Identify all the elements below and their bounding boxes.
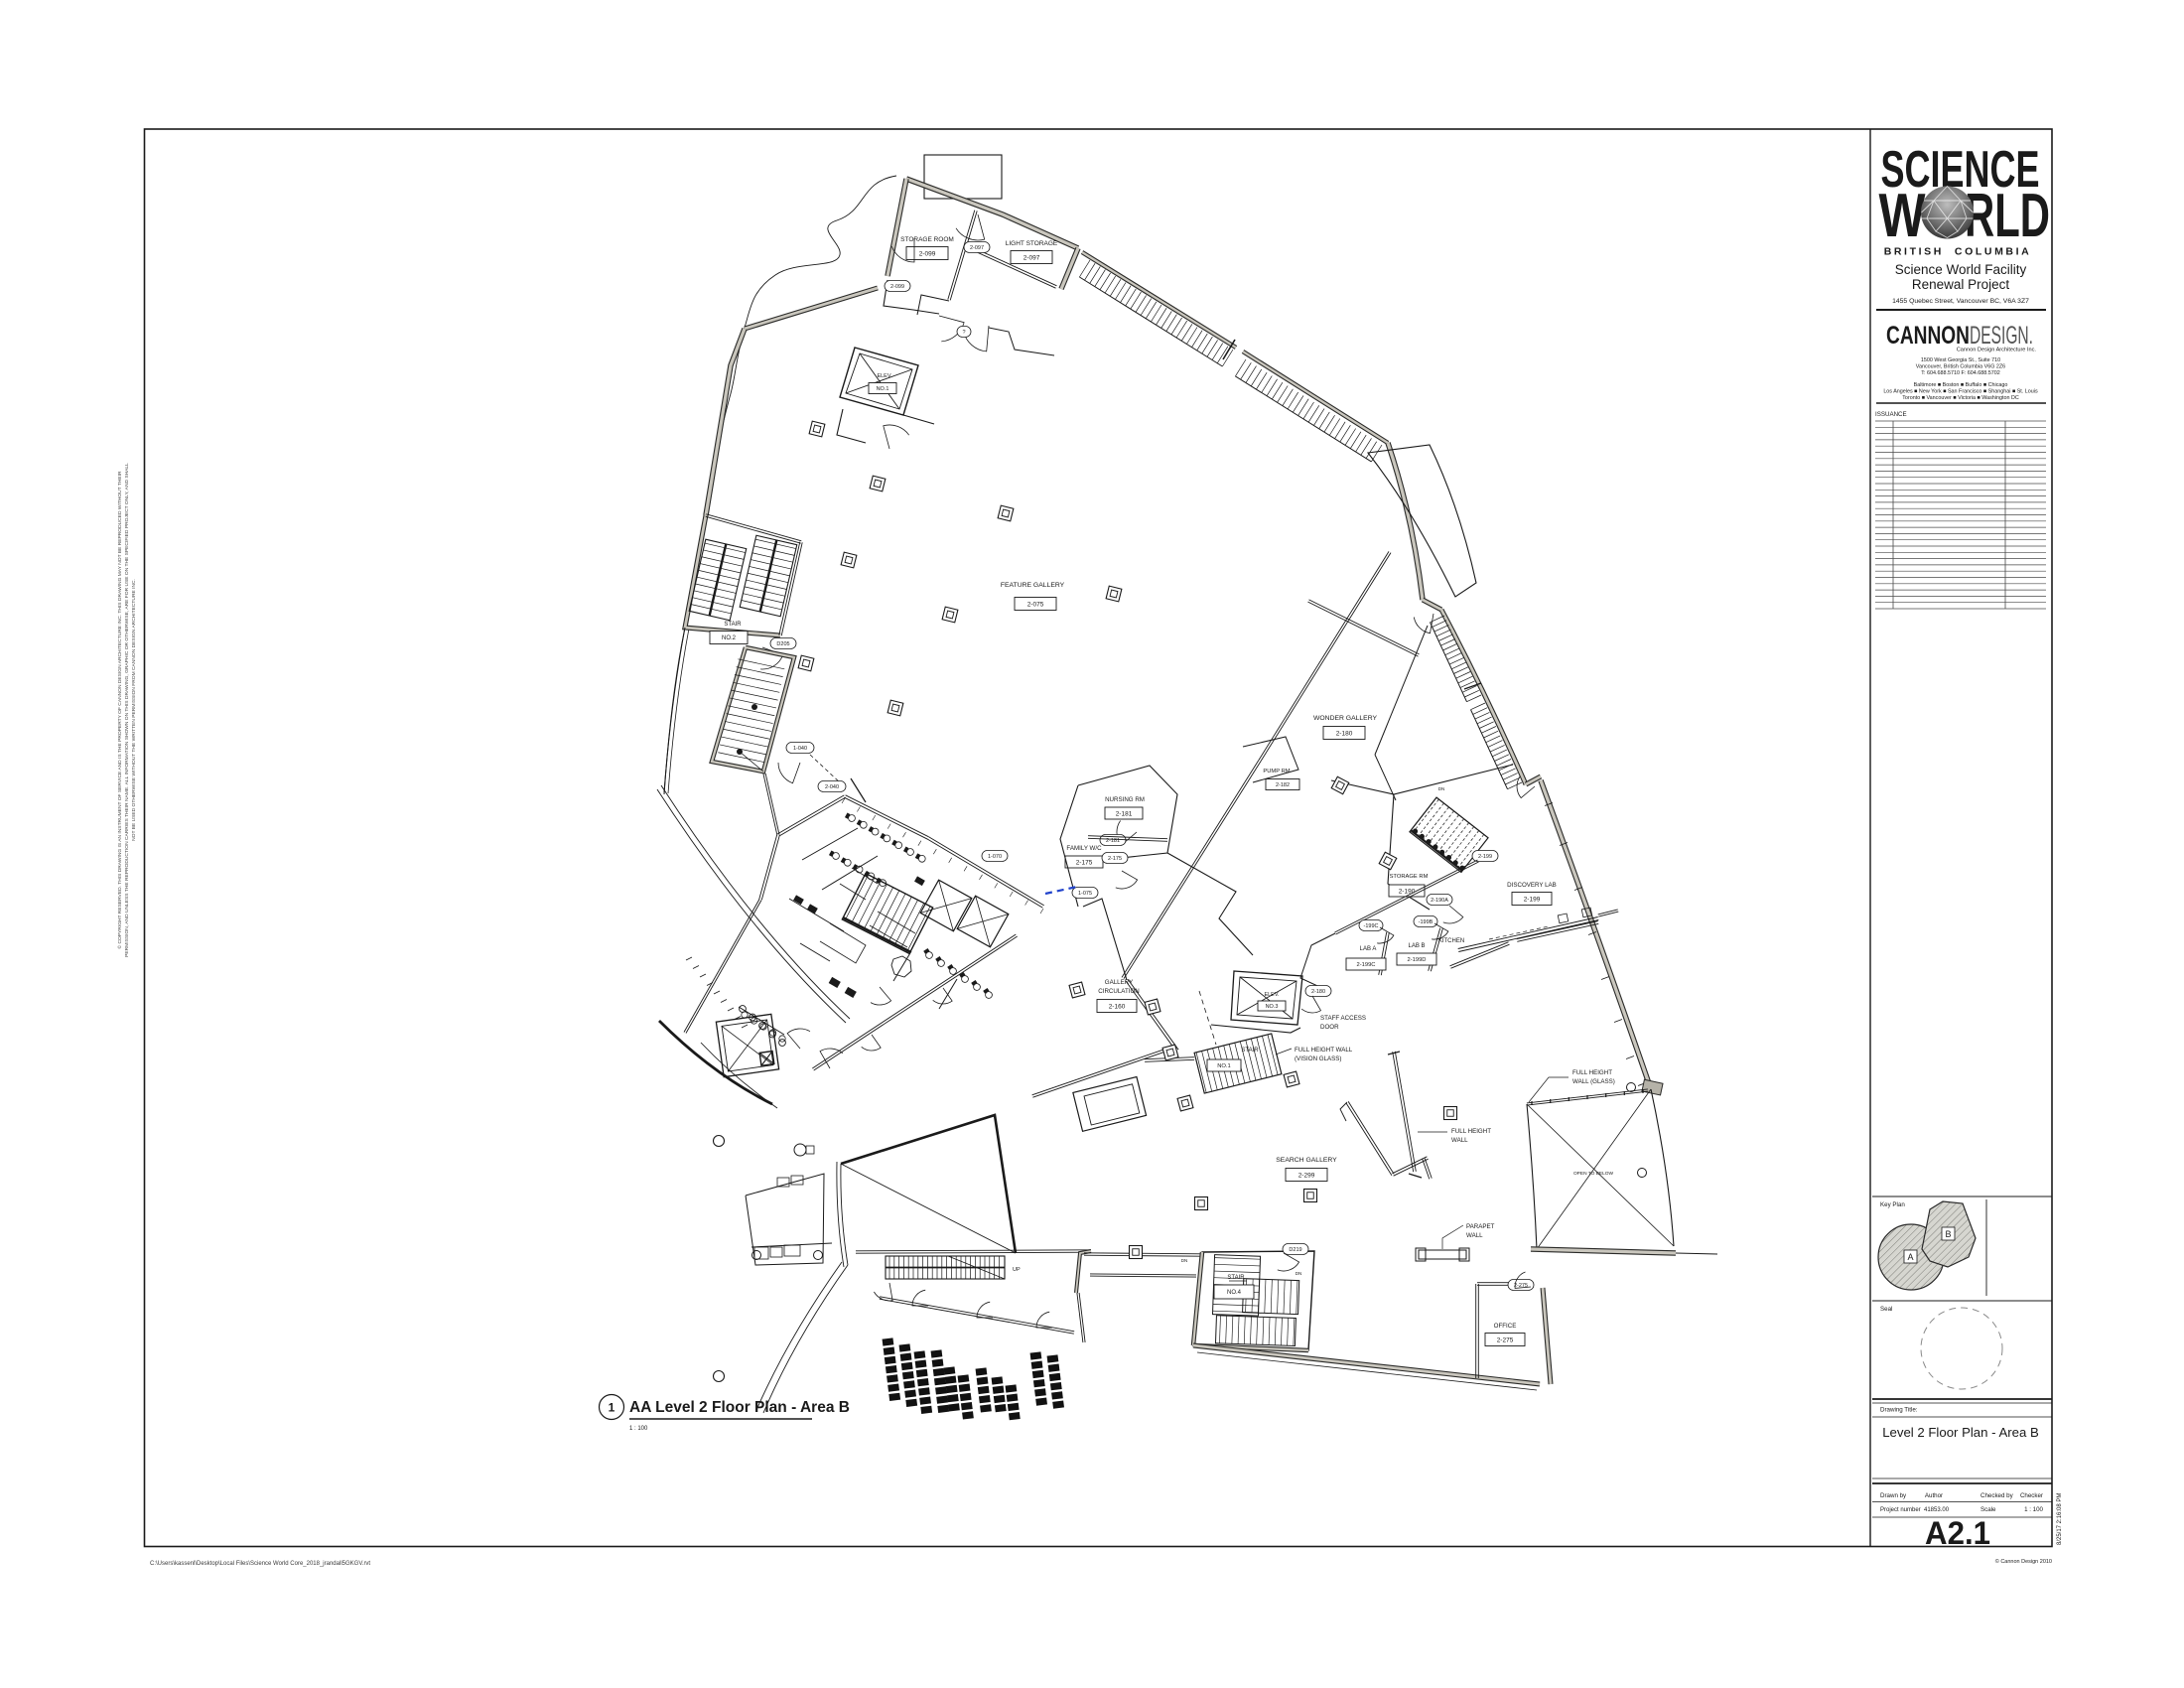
svg-text:© COPYRIGHT RESERVED. THIS DR: © COPYRIGHT RESERVED. THIS DRAWING IS AN… — [116, 471, 123, 949]
svg-text:2-097: 2-097 — [1024, 254, 1040, 261]
svg-text:Checked by: Checked by — [1980, 1492, 2014, 1499]
svg-text:-199B: -199B — [1419, 919, 1433, 925]
svg-text:DN: DN — [1181, 1258, 1188, 1263]
svg-text:FULL HEIGHT: FULL HEIGHT — [1572, 1069, 1612, 1076]
svg-text:2-160: 2-160 — [1109, 1003, 1126, 1010]
svg-text:2-099: 2-099 — [890, 284, 904, 290]
svg-text:CANNON: CANNON — [1886, 322, 1970, 350]
svg-text:DESIGN.: DESIGN. — [1970, 322, 2033, 350]
svg-text:DN: DN — [1296, 1271, 1302, 1276]
svg-text:2-075: 2-075 — [1027, 601, 1044, 608]
svg-text:Drawn by: Drawn by — [1880, 1492, 1907, 1499]
svg-text:Project number: Project number — [1880, 1507, 1921, 1513]
svg-text:OPEN TO BELOW: OPEN TO BELOW — [1573, 1171, 1614, 1177]
svg-text:2-175: 2-175 — [1108, 856, 1122, 862]
svg-text:ISSUANCE: ISSUANCE — [1875, 411, 1907, 418]
svg-text:ELEV.: ELEV. — [877, 373, 892, 379]
svg-text:A: A — [1907, 1252, 1913, 1262]
svg-text:KITCHEN: KITCHEN — [1438, 938, 1464, 944]
svg-text:Drawing Title:: Drawing Title: — [1880, 1407, 1918, 1414]
svg-text:NOT BE USED OTHERWISE WITHOUT: NOT BE USED OTHERWISE WITHOUT THE WRITTE… — [131, 579, 137, 841]
svg-text:D219: D219 — [1289, 1247, 1301, 1253]
svg-text:2-275: 2-275 — [1497, 1336, 1514, 1343]
svg-text:-199C: -199C — [1364, 923, 1379, 929]
svg-text:OFFICE: OFFICE — [1494, 1323, 1517, 1330]
svg-text:Author: Author — [1925, 1492, 1943, 1499]
svg-text:NO.4: NO.4 — [1227, 1290, 1242, 1296]
svg-text:STAFF ACCESS: STAFF ACCESS — [1320, 1015, 1366, 1022]
svg-text:Scale: Scale — [1980, 1506, 1996, 1513]
svg-text:Toronto ■ Vancouver ■ Victori: Toronto ■ Vancouver ■ Victoria ■ Washing… — [1902, 395, 2019, 401]
svg-text:STORAGE ROOM: STORAGE ROOM — [900, 236, 954, 243]
svg-text:T: 604.688.5710 F: 604.688.57: T: 604.688.5710 F: 604.688.5702 — [1921, 370, 1999, 376]
svg-text:1455 Quebec Street, Vancouver: 1455 Quebec Street, Vancouver BC, V6A 3Z… — [1892, 298, 2029, 305]
svg-text:C:\Users\kassenl\Desktop\Local: C:\Users\kassenl\Desktop\Local Files\Sci… — [150, 1561, 370, 1567]
svg-text:WONDER GALLERY: WONDER GALLERY — [1313, 715, 1378, 722]
svg-text:WALL (GLASS): WALL (GLASS) — [1572, 1078, 1615, 1085]
svg-text:NURSING RM: NURSING RM — [1105, 796, 1145, 803]
svg-text:NO.2: NO.2 — [722, 635, 737, 641]
svg-text:2-099: 2-099 — [919, 250, 936, 257]
svg-text:(VISION GLASS): (VISION GLASS) — [1295, 1055, 1341, 1062]
svg-text:Baltimore ■ Boston ■ Buffalo ■: Baltimore ■ Boston ■ Buffalo ■ Chicago — [1914, 382, 2008, 388]
svg-text:Seal: Seal — [1880, 1306, 1892, 1313]
svg-text:1 : 100: 1 : 100 — [629, 1426, 648, 1432]
svg-text:STAIR: STAIR — [1227, 1275, 1245, 1281]
svg-text:1: 1 — [609, 1401, 615, 1415]
svg-text:Vancouver, British Columbia V6: Vancouver, British Columbia V6G 2Z6 — [1916, 364, 2005, 370]
svg-text:STAIR: STAIR — [1241, 1048, 1259, 1054]
svg-text:DISCOVERY LAB: DISCOVERY LAB — [1507, 882, 1557, 889]
svg-text:1-040: 1-040 — [793, 746, 807, 752]
svg-text:PUMP RM: PUMP RM — [1263, 769, 1290, 774]
svg-text:D205: D205 — [776, 641, 789, 647]
svg-text:AA Level 2 Floor Plan - Area B: AA Level 2 Floor Plan - Area B — [629, 1399, 850, 1416]
svg-text:DN: DN — [1438, 786, 1445, 791]
svg-text:B: B — [1945, 1229, 1951, 1239]
svg-text:STORAGE RM: STORAGE RM — [1390, 874, 1429, 880]
svg-text:© Cannon Design 2010: © Cannon Design 2010 — [1995, 1558, 2052, 1565]
svg-text:2-097: 2-097 — [970, 245, 984, 251]
svg-text:1500 West Georgia St., Suite 7: 1500 West Georgia St., Suite 710 — [1921, 357, 2000, 363]
svg-text:2-190A: 2-190A — [1431, 898, 1448, 904]
svg-text:41853.00: 41853.00 — [1924, 1507, 1950, 1513]
svg-text:STAIR: STAIR — [724, 622, 742, 628]
svg-text:2-182: 2-182 — [1276, 782, 1290, 788]
svg-text:1-075: 1-075 — [1078, 891, 1092, 897]
svg-text:8/25/17 2:16:08 PM: 8/25/17 2:16:08 PM — [2057, 1493, 2063, 1545]
svg-text:A2.1: A2.1 — [1925, 1515, 1990, 1551]
svg-text:2-181: 2-181 — [1116, 810, 1133, 817]
svg-text:NO.1: NO.1 — [1217, 1063, 1231, 1069]
svg-text:2-199C: 2-199C — [1356, 962, 1375, 968]
svg-text:FULL HEIGHT: FULL HEIGHT — [1451, 1128, 1491, 1135]
svg-text:Key Plan: Key Plan — [1880, 1201, 1905, 1208]
svg-text:Checker: Checker — [2020, 1492, 2043, 1499]
svg-text:2-199: 2-199 — [1524, 896, 1541, 903]
svg-text:LAB B: LAB B — [1408, 943, 1425, 949]
svg-text:?: ? — [962, 330, 965, 336]
svg-text:PARAPET: PARAPET — [1466, 1223, 1495, 1230]
svg-text:LIGHT STORAGE: LIGHT STORAGE — [1006, 240, 1058, 247]
svg-text:FAMILY W/C: FAMILY W/C — [1066, 845, 1102, 852]
svg-text:FULL HEIGHT WALL: FULL HEIGHT WALL — [1295, 1047, 1353, 1054]
svg-text:DOOR: DOOR — [1320, 1024, 1339, 1031]
svg-text:NO.3: NO.3 — [1266, 1004, 1279, 1010]
svg-text:UP: UP — [1013, 1267, 1021, 1273]
svg-text:CIRCULATION: CIRCULATION — [1098, 988, 1139, 995]
svg-text:BRITISH COLUMBIA: BRITISH COLUMBIA — [1884, 246, 2032, 258]
svg-text:WALL: WALL — [1466, 1232, 1483, 1239]
svg-text:GALLERY: GALLERY — [1105, 979, 1133, 986]
svg-text:W: W — [1879, 182, 1926, 250]
svg-text:LAB A: LAB A — [1360, 946, 1377, 952]
svg-text:2-180: 2-180 — [1311, 989, 1325, 995]
svg-text:FEATURE GALLERY: FEATURE GALLERY — [1001, 582, 1065, 589]
svg-text:2-199D: 2-199D — [1407, 957, 1426, 963]
svg-text:2-299: 2-299 — [1298, 1172, 1315, 1179]
svg-text:Science World Facility: Science World Facility — [1895, 262, 2027, 277]
svg-text:Level 2 Floor Plan - Area B: Level 2 Floor Plan - Area B — [1882, 1425, 2039, 1440]
svg-text:2-180: 2-180 — [1336, 730, 1353, 737]
svg-text:SEARCH GALLERY: SEARCH GALLERY — [1276, 1157, 1337, 1164]
svg-text:RLD: RLD — [1965, 182, 2050, 250]
svg-text:1-070: 1-070 — [988, 854, 1002, 860]
svg-text:Cannon Design Architecture Inc: Cannon Design Architecture Inc. — [1957, 348, 2037, 353]
svg-text:ELEV.: ELEV. — [1264, 992, 1280, 998]
svg-text:PERMISSION, AND UNLESS THE REP: PERMISSION, AND UNLESS THE REPRODUCTION … — [124, 463, 130, 957]
svg-text:2-175: 2-175 — [1076, 859, 1093, 866]
svg-text:2-199: 2-199 — [1478, 854, 1492, 860]
svg-text:2-040: 2-040 — [825, 784, 839, 790]
svg-text:Los Angeles ■ New York ■ San F: Los Angeles ■ New York ■ San Francisco ■… — [1883, 389, 2038, 395]
svg-text:WALL: WALL — [1451, 1137, 1468, 1144]
svg-text:1 : 100: 1 : 100 — [2024, 1506, 2043, 1513]
svg-text:Renewal Project: Renewal Project — [1912, 277, 2010, 292]
svg-text:2-190: 2-190 — [1399, 888, 1416, 895]
svg-text:NO.1: NO.1 — [877, 386, 889, 392]
